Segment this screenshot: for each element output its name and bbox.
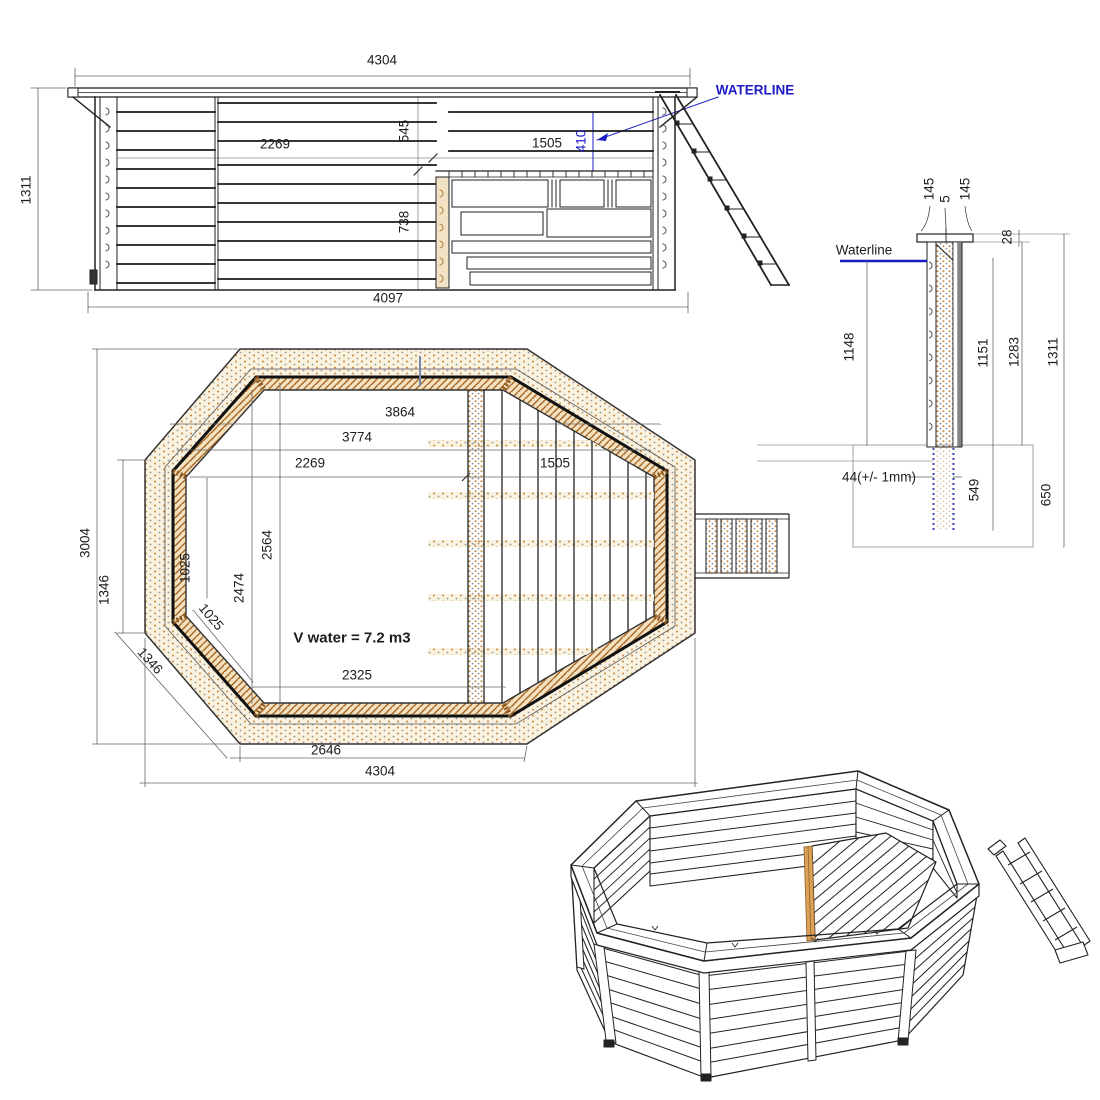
dim-section-plank: 44(+/- 1mm) [842, 470, 916, 484]
cross-section-view [757, 206, 1070, 547]
dim-plan-2564: 2564 [260, 530, 274, 560]
dim-plan-3004: 3004 [78, 528, 92, 558]
waterline-label-section: Waterline [836, 243, 893, 257]
dim-section-cap-thickness: 28 [1000, 229, 1014, 244]
section-extension-lines [757, 234, 1070, 461]
elevation-ladder [656, 92, 789, 285]
section-wall [917, 206, 973, 530]
dim-elevation-inner-width: 2269 [260, 137, 290, 151]
dim-plan-2646: 2646 [311, 743, 341, 757]
dim-section-1151: 1151 [976, 338, 990, 367]
dim-plan-3864: 3864 [385, 405, 415, 419]
waterline-label-elevation: WATERLINE [716, 83, 795, 97]
dim-section-cap-gap: 5 [938, 195, 952, 203]
dim-plan-1025-vertical: 1025 [178, 553, 192, 583]
dim-section-1283: 1283 [1007, 337, 1021, 367]
dim-plan-4304: 4304 [365, 764, 395, 778]
dim-plan-2269: 2269 [295, 456, 325, 470]
dim-elevation-waterline-offset: 410 [574, 130, 588, 153]
water-volume-label: V water = 7.2 m3 [293, 631, 410, 646]
elevation-cap [68, 88, 697, 97]
plan-view [92, 349, 789, 787]
drawing-linework [0, 0, 1100, 1100]
dim-plan-2474: 2474 [232, 573, 246, 603]
elevation-wall [73, 97, 697, 290]
dim-section-cap-left: 145 [922, 178, 936, 201]
isometric-view [571, 771, 1090, 1081]
dim-plan-2325: 2325 [342, 668, 372, 682]
dim-elevation-top-width: 4304 [367, 53, 397, 67]
elevation-view [31, 68, 789, 313]
dim-section-1148: 1148 [842, 332, 856, 361]
dim-section-1311: 1311 [1046, 337, 1060, 366]
plan-ladder [695, 514, 789, 578]
technical-drawing-canvas: 4304 1311 2269 545 1505 410 738 4097 WAT… [0, 0, 1100, 1100]
dim-elevation-height: 1311 [19, 175, 33, 204]
dim-plan-3774: 3774 [342, 430, 372, 444]
dim-elevation-upper-height: 545 [397, 120, 411, 143]
elevation-dim-lines [31, 68, 690, 313]
dim-elevation-bottom-width: 4097 [373, 291, 403, 305]
dim-plan-1505: 1505 [540, 456, 570, 470]
dim-section-549: 549 [967, 479, 981, 502]
dim-plan-1346-left: 1346 [97, 575, 111, 605]
dim-section-cap-right: 145 [958, 178, 972, 201]
iso-ladder [988, 838, 1090, 963]
dim-elevation-lower-height: 738 [397, 211, 411, 234]
dim-elevation-deck-width: 1505 [532, 136, 562, 150]
elevation-deck-structure [436, 171, 653, 288]
dim-section-650: 650 [1039, 484, 1053, 507]
